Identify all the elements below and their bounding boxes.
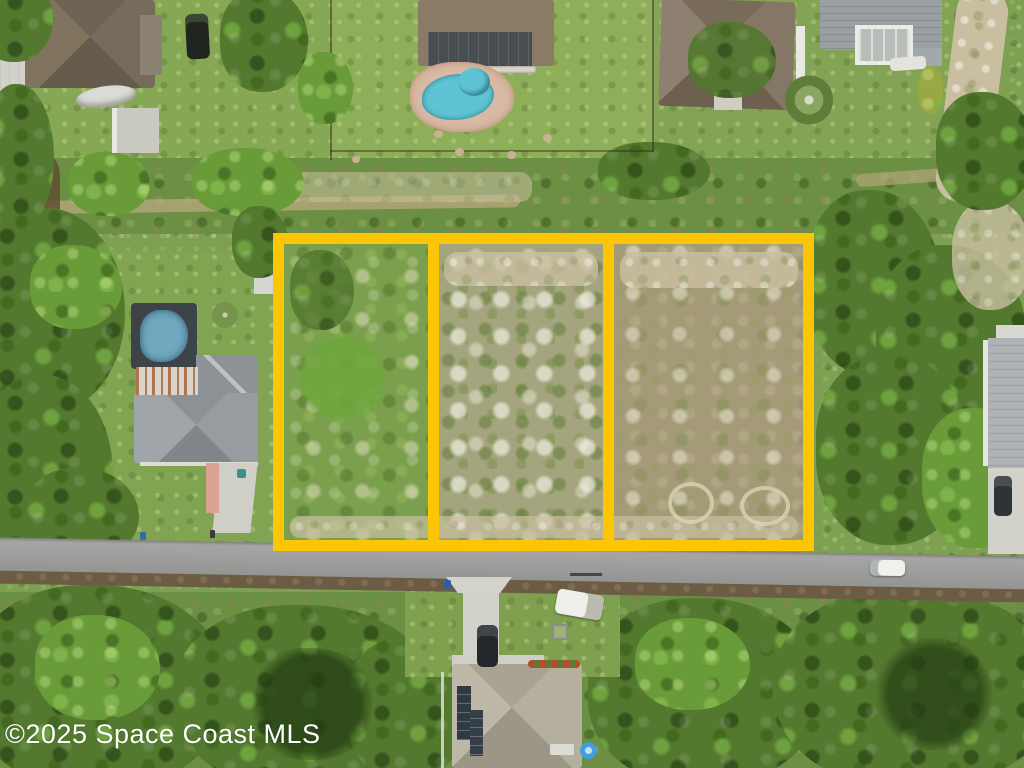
left-house-roof-wing: [196, 355, 258, 397]
front-walk: [550, 744, 574, 755]
forest-bottom: [35, 615, 160, 720]
rusty-metal-roof: [136, 367, 198, 395]
right-driveway-car: [994, 476, 1012, 516]
stepping-stone: [352, 156, 360, 163]
tree-canopy: [936, 92, 1024, 210]
left-house-roof-main: [134, 393, 258, 463]
hedge-top-right: [918, 66, 944, 114]
mailbox-rail: [570, 573, 602, 576]
blue-spa: [580, 742, 597, 759]
dry-band-above-lots: [282, 172, 532, 202]
white-car-on-road: [870, 560, 905, 577]
trailer-top-right: [890, 56, 927, 71]
trash-bin-teal: [237, 469, 246, 478]
yard-fence-bottom: [330, 150, 654, 152]
driveway-car: [477, 625, 498, 667]
left-driveway: [212, 463, 257, 533]
trash-bin-blue: [444, 580, 451, 589]
right-house-roof: [988, 338, 1024, 468]
mailbox-left: [210, 530, 215, 538]
sandy-patch-right: [952, 200, 1024, 310]
lot-outline-frame: [273, 233, 814, 551]
bush-cluster: [192, 148, 304, 216]
forest-left: [30, 245, 122, 329]
solar-panels: [457, 686, 471, 740]
palm-tree: [785, 74, 833, 126]
tree-canopy: [688, 22, 776, 98]
swimming-pool-spa-lobe: [458, 68, 490, 96]
stepping-stone: [434, 130, 443, 138]
bush-cluster: [68, 152, 150, 216]
aerial-photo: ©2025 Space Coast MLS: [0, 0, 1024, 768]
stepping-stone: [543, 134, 552, 142]
fence-line-bottom: [441, 672, 444, 768]
suv-vehicle: [185, 13, 210, 59]
garage-top-left-roof: [140, 15, 162, 75]
stepping-stone: [507, 151, 516, 159]
forest-bottom: [635, 618, 750, 710]
palm-left-parcel: [210, 300, 240, 330]
stepping-stone: [455, 148, 464, 156]
lot-divider-2: [603, 244, 614, 540]
forest-bottom-dark: [872, 638, 997, 750]
watermark: ©2025 Space Coast MLS: [5, 719, 321, 750]
right-house-eave: [983, 340, 988, 466]
shed-top-left: [112, 108, 159, 153]
lot-divider-1: [428, 244, 439, 540]
painted-walkway-pink: [206, 463, 219, 513]
tree-canopy: [298, 52, 353, 124]
utility-pad: [552, 624, 568, 640]
yard-fence-right: [652, 0, 654, 152]
roof-flower-hedge: [528, 660, 580, 668]
solar-panels: [470, 710, 483, 756]
trash-bin-blue: [140, 532, 146, 540]
